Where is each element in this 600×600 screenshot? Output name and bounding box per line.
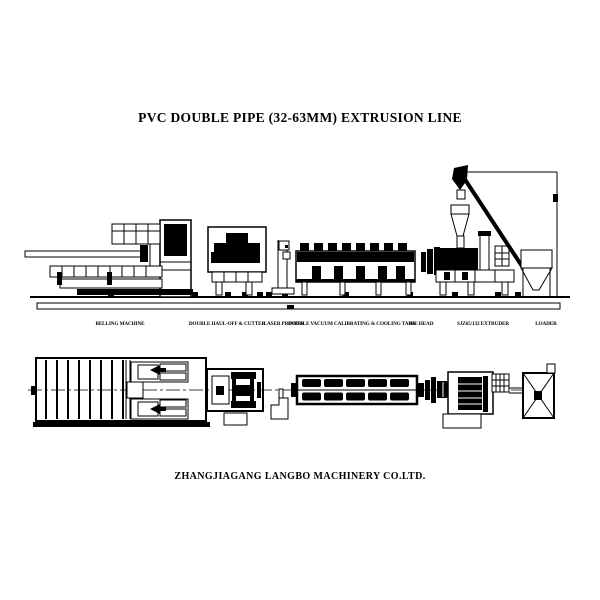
laser-printer-plan — [271, 389, 288, 419]
belling-table — [50, 266, 162, 277]
machine-labels-row: BELLING MACHINE DOUBLE HAUL-OFF & CUTTER… — [95, 321, 557, 327]
hopper-lid — [451, 205, 469, 214]
label-belling-machine: BELLING MACHINE — [95, 321, 145, 327]
cooling-tank-side — [296, 243, 415, 295]
hauloff-cutter-plan — [207, 369, 263, 425]
extruder-side — [436, 205, 514, 295]
plan-view — [28, 358, 555, 428]
pipe-rail — [25, 251, 143, 257]
label-cooling-tank: DOUBLE VACUUM CALIBRATING & COOLING TANK — [288, 321, 416, 327]
loader-plan — [523, 364, 555, 418]
extrusion-line-drawing: PVC DOUBLE PIPE (32-63MM) EXTRUSION LINE — [0, 0, 600, 600]
belling-tower-panel — [164, 224, 187, 256]
label-hauloff-cutter: DOUBLE HAUL-OFF & CUTTER — [189, 321, 266, 327]
oil-cylinder — [480, 234, 489, 270]
drawing-title: PVC DOUBLE PIPE (32-63MM) EXTRUSION LINE — [138, 110, 462, 125]
label-loader: LOADER — [535, 321, 557, 327]
extruder-barrel — [438, 248, 478, 270]
label-die-head: DIE HEAD — [409, 321, 434, 327]
belling-machine-plan — [31, 358, 210, 427]
hopper-funnel — [451, 214, 469, 236]
side-elevation-view — [25, 165, 570, 309]
material-bin — [521, 250, 552, 268]
company-name: ZHANGJIAGANG LANGBO MACHINERY CO.LTD. — [174, 471, 425, 482]
label-extruder: SJZ65/132 EXTRUDER — [457, 321, 509, 327]
cooling-tank-plan — [291, 376, 423, 404]
belling-machine-side — [25, 220, 193, 297]
laser-printer-side — [272, 240, 294, 294]
hauloff-cutter-side — [208, 227, 266, 295]
extruder-plan — [420, 372, 523, 428]
drawing-page: PVC DOUBLE PIPE (32-63MM) EXTRUSION LINE — [0, 0, 600, 600]
base-rail — [37, 303, 560, 309]
